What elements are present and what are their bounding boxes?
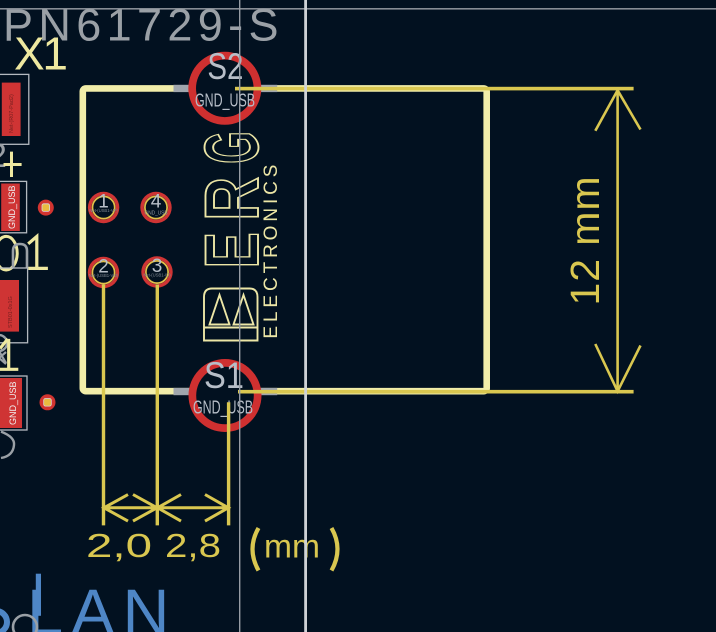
svg-text:12 mm: 12 mm (562, 177, 608, 306)
svg-text:S2: S2 (207, 46, 243, 87)
svg-text:LAN: LAN (27, 576, 177, 632)
svg-text:Net-(USB1-ID): Net-(USB1-ID) (143, 273, 171, 278)
svg-text:S1: S1 (204, 355, 244, 396)
svg-text:2,8: 2,8 (165, 527, 221, 564)
svg-text:mm: mm (264, 528, 320, 565)
svg-text:GND_USB: GND_USB (145, 211, 168, 217)
svg-text:GND_USB: GND_USB (8, 381, 18, 425)
svg-text:GND_USB: GND_USB (193, 398, 253, 419)
svg-text:Net-(USB1-VP): Net-(USB1-VP) (89, 208, 118, 213)
svg-text:G: G (189, 131, 275, 164)
svg-text:2,0: 2,0 (86, 527, 152, 564)
svg-text:Net-(R07-Pad2): Net-(R07-Pad2) (9, 94, 15, 133)
svg-text:X1: X1 (14, 28, 69, 80)
svg-text:STB01-0x1G: STB01-0x1G (8, 296, 14, 328)
svg-text:ELECTRONICS: ELECTRONICS (261, 165, 282, 339)
svg-text:Net-(USB1-VM): Net-(USB1-VM) (89, 273, 119, 278)
svg-text:2: 2 (0, 137, 7, 175)
svg-text:GND_USB: GND_USB (7, 185, 17, 229)
svg-text:GND_USB: GND_USB (195, 91, 255, 112)
svg-text:4: 4 (151, 192, 162, 213)
